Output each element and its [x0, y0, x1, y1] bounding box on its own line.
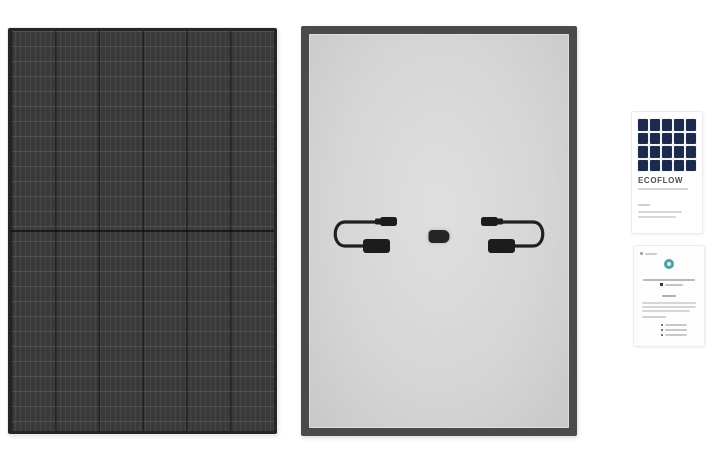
junction-box — [429, 230, 450, 243]
solar-panel-back-image — [301, 26, 577, 436]
eco-globe-icon — [664, 259, 674, 269]
manual-paragraph-bar — [642, 310, 690, 312]
manual-heading-bar — [662, 295, 676, 297]
list-bullet-icon — [661, 324, 663, 326]
product-photo-stage: ECOFLOW — [0, 0, 709, 466]
brand-label-card: ECOFLOW — [632, 112, 702, 233]
mc4-cable-right-icon — [475, 212, 555, 258]
manual-paragraph-bar — [642, 302, 696, 304]
manual-paragraph-bar — [642, 316, 666, 318]
label-text-bar — [638, 216, 676, 218]
qr-mini-icon — [660, 283, 663, 286]
list-bullet-icon — [661, 329, 663, 331]
manual-logo-text-bar — [645, 253, 657, 255]
tagline-text-bar — [638, 188, 688, 190]
solar-cell-grid — [11, 31, 274, 431]
manual-list-item-bar — [665, 329, 687, 331]
list-bullet-icon — [661, 334, 663, 336]
manual-card — [634, 246, 704, 346]
backsheet — [309, 34, 569, 428]
label-text-bar — [638, 211, 682, 213]
manual-list-item-bar — [665, 334, 687, 336]
manual-logo-icon — [640, 252, 643, 255]
manual-subtitle-bar — [665, 284, 683, 286]
label-text-bar — [638, 204, 650, 206]
mc4-cable-left-icon — [323, 212, 403, 258]
brand-wordmark: ECOFLOW — [638, 176, 683, 185]
manual-list-item-bar — [665, 324, 687, 326]
manual-title-bar — [643, 279, 695, 281]
manual-paragraph-bar — [642, 306, 696, 308]
half-cut-divider — [11, 230, 274, 232]
panel-thumbnail-image — [637, 118, 697, 172]
solar-panel-front-image — [8, 28, 277, 434]
